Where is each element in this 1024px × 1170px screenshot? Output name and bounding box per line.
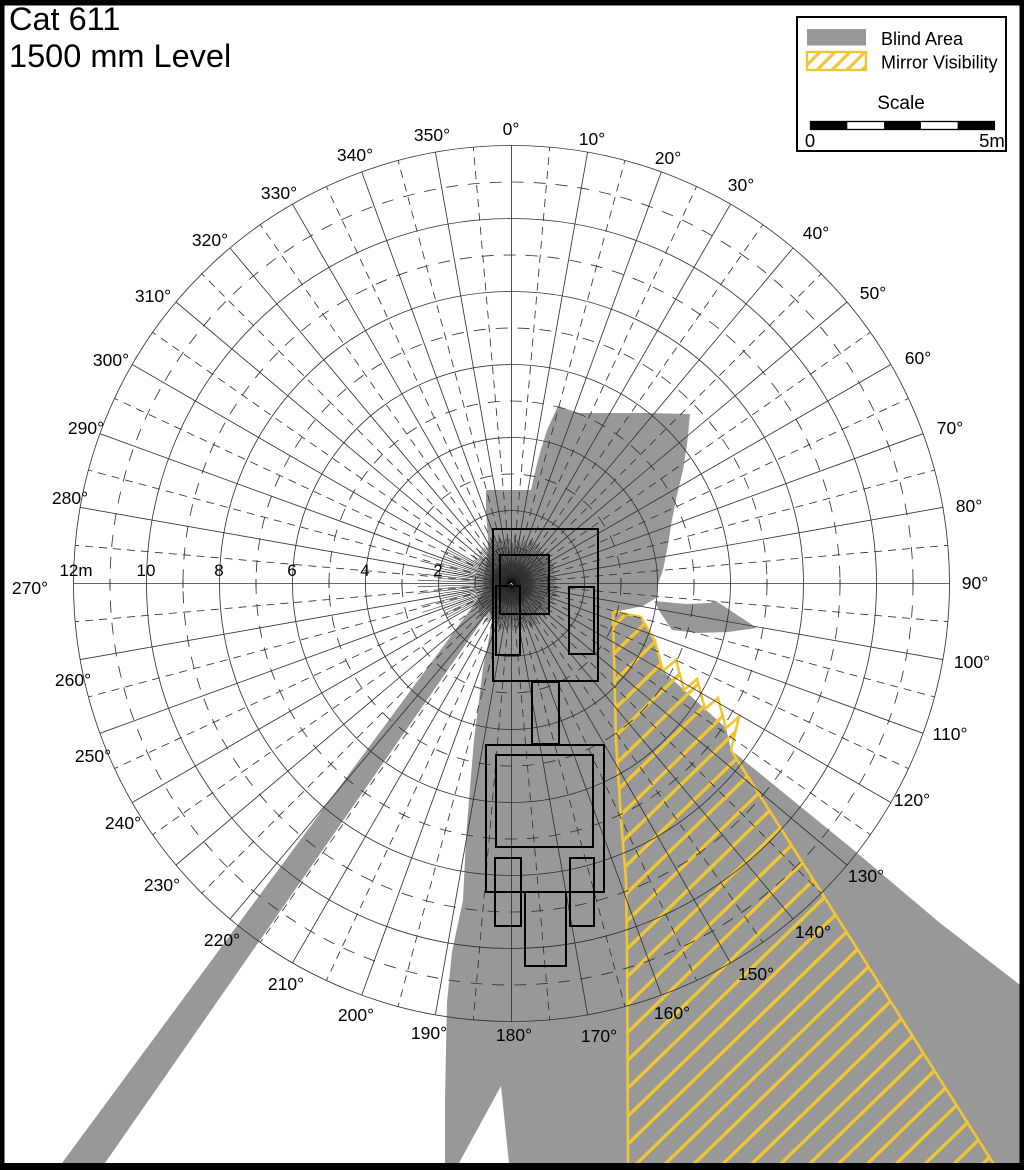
svg-text:60°: 60° [905, 348, 931, 368]
svg-text:230°: 230° [144, 875, 180, 895]
svg-text:280°: 280° [52, 488, 88, 508]
svg-text:240°: 240° [105, 813, 141, 833]
svg-text:Cat 611: Cat 611 [9, 1, 120, 37]
svg-text:200°: 200° [338, 1005, 374, 1025]
svg-text:150°: 150° [738, 964, 774, 984]
svg-text:100°: 100° [954, 652, 990, 672]
svg-text:190°: 190° [411, 1023, 447, 1043]
svg-text:2: 2 [433, 561, 442, 580]
svg-text:70°: 70° [937, 418, 963, 438]
svg-text:30°: 30° [728, 175, 754, 195]
svg-text:330°: 330° [261, 183, 297, 203]
svg-text:6: 6 [287, 561, 296, 580]
svg-text:250°: 250° [75, 746, 111, 766]
svg-text:140°: 140° [795, 922, 831, 942]
svg-text:1500 mm Level: 1500 mm Level [9, 38, 231, 74]
svg-text:10: 10 [137, 561, 156, 580]
svg-text:10°: 10° [579, 129, 605, 149]
svg-text:Mirror Visibility: Mirror Visibility [881, 53, 998, 73]
svg-text:50°: 50° [860, 283, 886, 303]
svg-text:Scale: Scale [877, 93, 925, 114]
svg-text:5m: 5m [979, 130, 1005, 151]
svg-text:350°: 350° [414, 125, 450, 145]
svg-text:290°: 290° [68, 418, 104, 438]
svg-text:300°: 300° [93, 350, 129, 370]
svg-text:310°: 310° [135, 286, 171, 306]
svg-text:8: 8 [214, 561, 223, 580]
svg-text:0°: 0° [503, 119, 520, 139]
svg-text:90°: 90° [962, 573, 988, 593]
svg-text:340°: 340° [337, 145, 373, 165]
svg-text:130°: 130° [848, 866, 884, 886]
svg-text:0: 0 [805, 130, 815, 151]
svg-text:12m: 12m [59, 561, 92, 580]
svg-text:270°: 270° [12, 578, 48, 598]
svg-text:80°: 80° [956, 496, 982, 516]
svg-text:210°: 210° [268, 974, 304, 994]
svg-text:40°: 40° [803, 223, 829, 243]
svg-text:260°: 260° [55, 670, 91, 690]
svg-text:320°: 320° [192, 230, 228, 250]
svg-text:180°: 180° [496, 1025, 532, 1045]
svg-text:Blind Area: Blind Area [881, 29, 964, 49]
svg-text:120°: 120° [894, 790, 930, 810]
svg-text:160°: 160° [654, 1003, 690, 1023]
svg-text:110°: 110° [933, 724, 968, 744]
svg-text:4: 4 [360, 561, 369, 580]
svg-text:20°: 20° [655, 148, 681, 168]
svg-text:220°: 220° [204, 930, 240, 950]
svg-text:170°: 170° [581, 1026, 617, 1046]
